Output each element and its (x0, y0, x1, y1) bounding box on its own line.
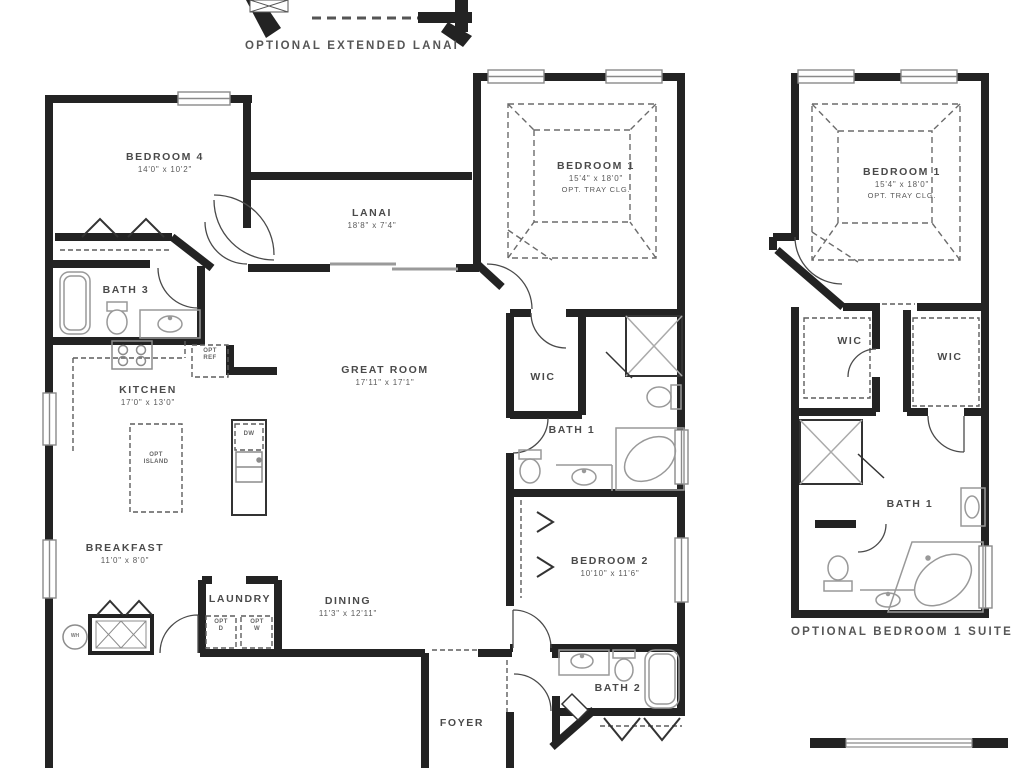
room-name: BATH 3 (103, 284, 150, 297)
room-name: LANAI (347, 207, 396, 220)
caption-optional-bedroom1-suite: OPTIONAL BEDROOM 1 SUITE (791, 626, 1013, 638)
suite-bath1-fixtures (800, 420, 985, 616)
room-name: BEDROOM 1 (863, 166, 941, 179)
room-name: BATH 1 (887, 498, 934, 511)
annotation-water-heater: WH (71, 633, 79, 639)
room-label-breakfast: BREAKFAST 11'0" x 8'0" (86, 542, 165, 566)
room-dims: 10'10" x 11'6" (571, 569, 649, 579)
annotation-opt-ref: OPT REF (203, 348, 217, 362)
room-name: BREAKFAST (86, 542, 165, 555)
room-name: BEDROOM 1 (557, 160, 635, 173)
room-dims: 17'11" x 17'1" (341, 378, 429, 388)
room-dims: 15'4" x 18'0" (863, 180, 941, 190)
sliding-glass-door (330, 264, 458, 269)
room-name: DINING (319, 595, 377, 608)
room-label-kitchen: KITCHEN 17'0" x 13'0" (119, 384, 177, 408)
suite-room-label-wic-right: WIC (937, 351, 962, 364)
room-label-great-room: GREAT ROOM 17'11" x 17'1" (341, 364, 429, 388)
room-name: FOYER (440, 717, 484, 730)
suite-room-label-bedroom1: BEDROOM 1 15'4" x 18'0" OPT. TRAY CLG. (863, 166, 941, 201)
room-name: WIC (837, 335, 862, 348)
room-label-bedroom2: BEDROOM 2 10'10" x 11'6" (571, 555, 649, 579)
room-label-bedroom4: BEDROOM 4 14'0" x 10'2" (126, 151, 204, 175)
room-label-laundry: LAUNDRY (209, 593, 271, 606)
room-dims: 17'0" x 13'0" (119, 398, 177, 408)
bath3-fixtures (60, 272, 200, 338)
annotation-dishwasher: DW (244, 431, 255, 438)
room-name: WIC (937, 351, 962, 364)
room-name: BATH 1 (549, 424, 596, 437)
room-note: OPT. TRAY CLG. (863, 191, 941, 200)
room-name: WIC (530, 371, 555, 384)
room-name: BEDROOM 4 (126, 151, 204, 164)
room-label-bath3: BATH 3 (103, 284, 150, 297)
floor-plan: OPTIONAL EXTENDED LANAI BEDROOM 4 14'0" … (0, 0, 1024, 768)
room-label-bath1: BATH 1 (549, 424, 596, 437)
annotation-opt-dryer: OPT D (214, 619, 228, 633)
room-name: LAUNDRY (209, 593, 271, 606)
suite-room-label-bath1: BATH 1 (887, 498, 934, 511)
room-dims: 15'4" x 18'0" (557, 174, 635, 184)
room-dims: 11'0" x 8'0" (86, 556, 165, 566)
room-name: GREAT ROOM (341, 364, 429, 377)
room-label-bedroom1: BEDROOM 1 15'4" x 18'0" OPT. TRAY CLG. (557, 160, 635, 195)
room-label-wic: WIC (530, 371, 555, 384)
caption-optional-extended-lanai: OPTIONAL EXTENDED LANAI (245, 40, 459, 52)
closet-door-chevrons (82, 219, 680, 740)
room-dims: 14'0" x 10'2" (126, 165, 204, 175)
room-name: BEDROOM 2 (571, 555, 649, 568)
suite-room-label-wic-left: WIC (837, 335, 862, 348)
annotation-opt-washer: OPT W (250, 619, 264, 633)
bath1-fixtures (519, 316, 684, 491)
room-dims: 11'3" x 12'11" (319, 609, 377, 619)
annotation-opt-island: OPT ISLAND (144, 452, 169, 466)
room-label-bath2: BATH 2 (595, 682, 642, 695)
detached-wall-segment (810, 738, 1008, 748)
room-label-lanai: LANAI 18'8" x 7'4" (347, 207, 396, 231)
room-label-dining: DINING 11'3" x 12'11" (319, 595, 377, 619)
room-note: OPT. TRAY CLG. (557, 185, 635, 194)
suite-walls (773, 77, 989, 618)
room-name: BATH 2 (595, 682, 642, 695)
room-dims: 18'8" x 7'4" (347, 221, 396, 231)
room-name: KITCHEN (119, 384, 177, 397)
room-label-foyer: FOYER (440, 717, 484, 730)
